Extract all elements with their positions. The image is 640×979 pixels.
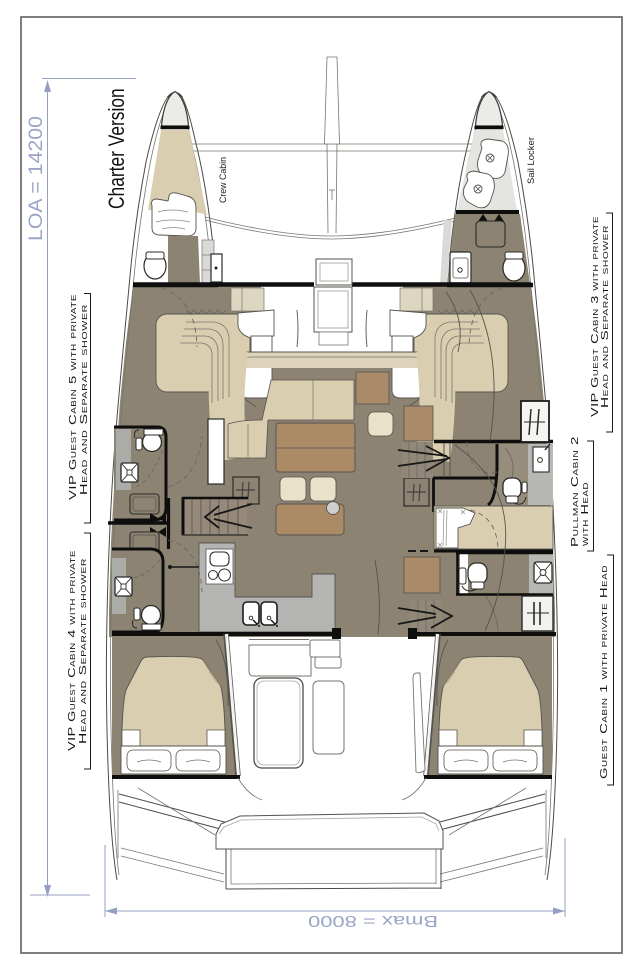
svg-text:with Head: with Head [579, 482, 591, 546]
svg-text:LOA = 14200: LOA = 14200 [26, 116, 47, 241]
svg-text:Charter Version: Charter Version [105, 88, 129, 209]
svg-text:Head and Separate shower: Head and Separate shower [77, 558, 89, 744]
svg-text:Head and Separate shower: Head and Separate shower [599, 225, 611, 408]
svg-text:Sail Locker: Sail Locker [526, 137, 537, 184]
svg-text:Head and Separate shower: Head and Separate shower [78, 304, 90, 495]
svg-text:Bmax = 8000: Bmax = 8000 [307, 912, 438, 929]
svg-text:Crew Cabin: Crew Cabin [218, 157, 229, 203]
svg-text:Guest Cabin 1 with private Hea: Guest Cabin 1 with private Head [598, 565, 610, 779]
